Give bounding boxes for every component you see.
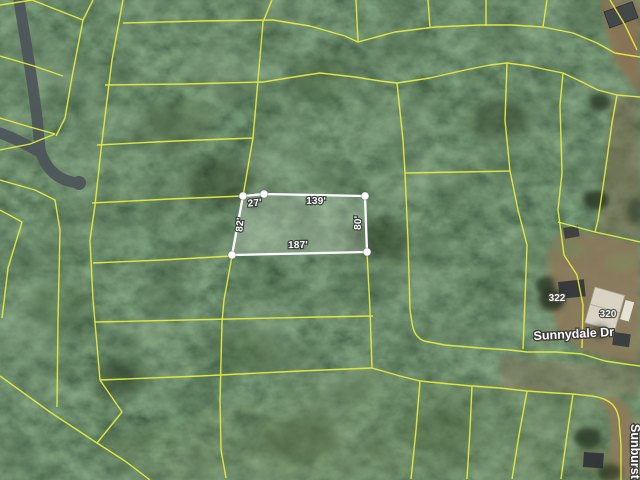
dim-label-bottom: 187' bbox=[288, 240, 308, 251]
parcel-vertex-handle[interactable] bbox=[363, 248, 371, 256]
dim-label-top-short: 27' bbox=[247, 197, 262, 209]
satellite-map[interactable]: 27' 139' 80' 187' 82' Sunnydale Dr Sunbu… bbox=[0, 0, 640, 480]
dim-label-top: 139' bbox=[306, 196, 326, 207]
map-canvas[interactable]: 27' 139' 80' 187' 82' Sunnydale Dr Sunbu… bbox=[0, 0, 640, 480]
address-label-320: 320 bbox=[600, 309, 617, 320]
dim-label-right: 80' bbox=[353, 216, 364, 230]
street-label-side: Sunburst bbox=[628, 424, 640, 480]
address-label-322: 322 bbox=[549, 293, 566, 304]
dim-label-left: 82' bbox=[234, 217, 246, 232]
dark-trailer bbox=[612, 332, 631, 347]
parcel-vertex-handle[interactable] bbox=[361, 192, 369, 200]
parcel-vertex-handle[interactable] bbox=[239, 192, 247, 200]
shed-bottom bbox=[583, 452, 604, 468]
parcel-vertex-handle[interactable] bbox=[228, 251, 236, 259]
